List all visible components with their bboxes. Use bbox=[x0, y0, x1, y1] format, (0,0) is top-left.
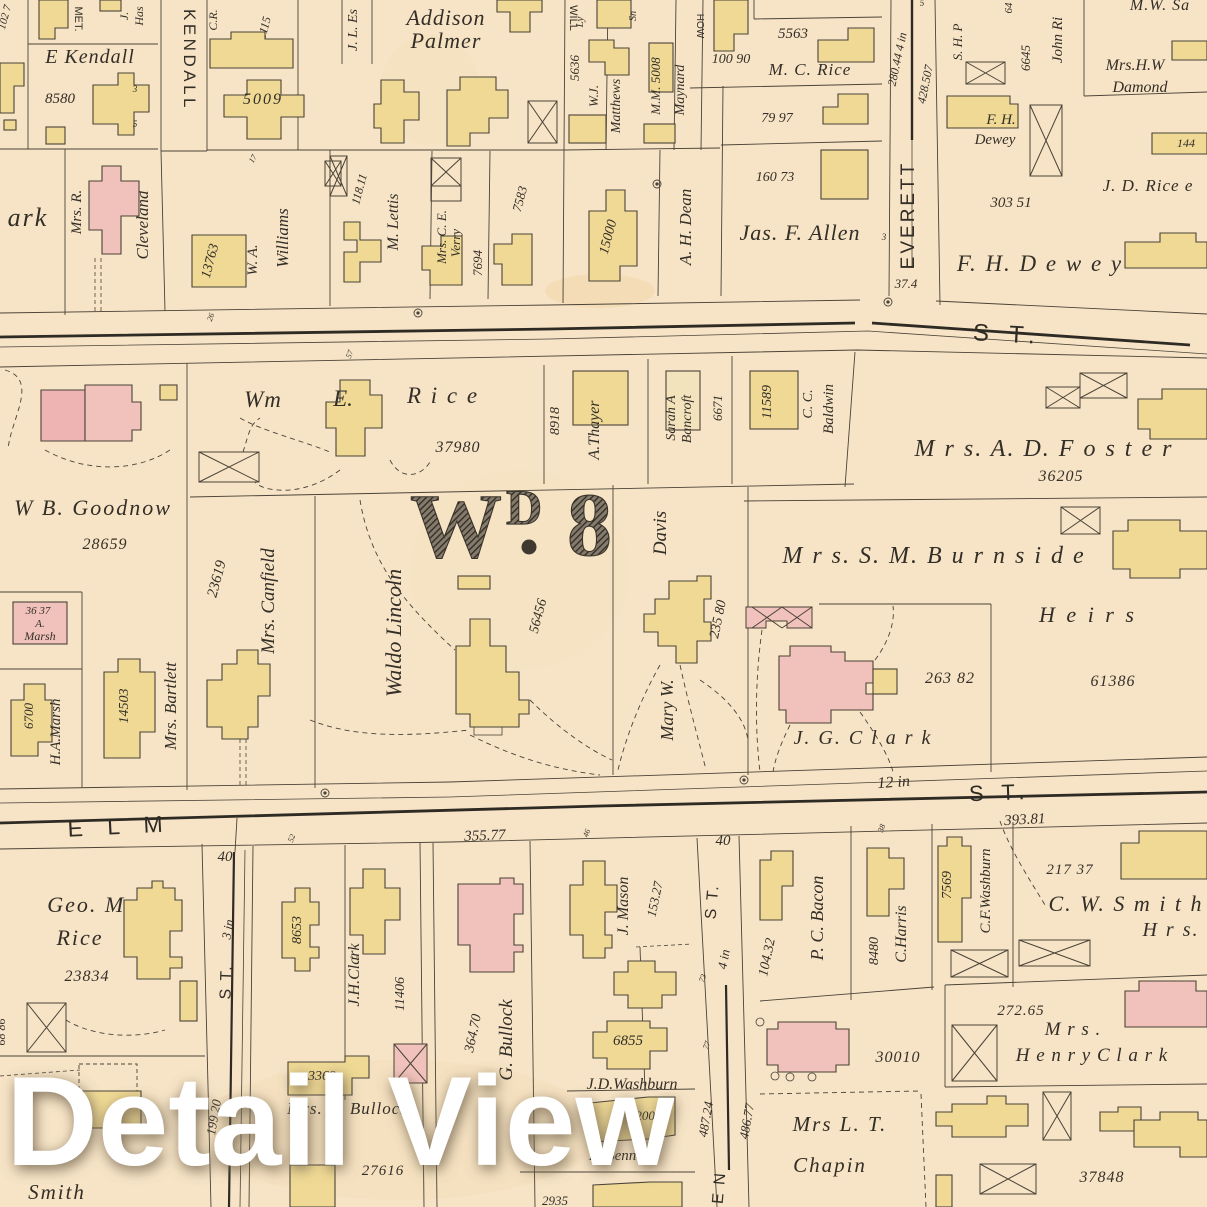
svg-text:Damond: Damond bbox=[1111, 79, 1168, 96]
svg-text:C.F.Washburn: C.F.Washburn bbox=[978, 848, 994, 933]
svg-text:A. H. Dean: A. H. Dean bbox=[676, 189, 695, 266]
svg-text:M.M. 5008: M.M. 5008 bbox=[648, 57, 663, 116]
svg-text:M. C. Rice: M. C. Rice bbox=[768, 60, 852, 79]
svg-text:5: 5 bbox=[133, 119, 138, 129]
svg-text:Geo. M.: Geo. M. bbox=[47, 892, 132, 917]
svg-text:Jas. F. Allen: Jas. F. Allen bbox=[740, 220, 861, 245]
svg-text:M. Lettis: M. Lettis bbox=[385, 194, 402, 252]
svg-text:C.R.: C.R. bbox=[206, 9, 220, 30]
svg-text:Mrs. C. E.: Mrs. C. E. bbox=[434, 210, 449, 265]
svg-text:A.Thayer: A.Thayer bbox=[586, 400, 603, 461]
svg-text:37980: 37980 bbox=[435, 439, 481, 456]
svg-text:Detail View: Detail View bbox=[6, 1050, 675, 1192]
svg-text:Verry: Verry bbox=[448, 229, 463, 257]
svg-text:79 97: 79 97 bbox=[761, 111, 794, 126]
svg-text:263 82: 263 82 bbox=[925, 670, 975, 687]
svg-text:Mrs L. T.: Mrs L. T. bbox=[792, 1112, 888, 1136]
svg-text:5009: 5009 bbox=[243, 91, 283, 108]
svg-text:393.81: 393.81 bbox=[1003, 811, 1046, 829]
svg-text:E Kendall: E Kendall bbox=[44, 46, 135, 68]
svg-text:Chapin: Chapin bbox=[793, 1153, 867, 1177]
svg-text:MET.: MET. bbox=[72, 6, 84, 31]
svg-text:S T.: S T. bbox=[217, 964, 235, 1000]
svg-text:F. H.: F. H. bbox=[985, 112, 1015, 128]
svg-text:John Ri: John Ri bbox=[1050, 17, 1066, 63]
svg-text:8580: 8580 bbox=[45, 91, 76, 107]
svg-text:Bancroft: Bancroft bbox=[680, 394, 695, 444]
svg-text:12 in: 12 in bbox=[877, 773, 911, 792]
svg-text:M.W. Sa: M.W. Sa bbox=[1129, 0, 1190, 14]
svg-text:M r s .: M r s . bbox=[1044, 1019, 1102, 1040]
svg-text:Sn: Sn bbox=[628, 11, 639, 21]
svg-text:Rice: Rice bbox=[55, 925, 103, 950]
svg-text:8918: 8918 bbox=[548, 407, 563, 435]
svg-text:8: 8 bbox=[567, 476, 612, 575]
svg-text:6855: 6855 bbox=[613, 1033, 644, 1049]
svg-text:7569: 7569 bbox=[940, 871, 955, 899]
svg-text:E.: E. bbox=[332, 386, 353, 411]
svg-text:Sarah A: Sarah A bbox=[664, 395, 679, 441]
svg-text:H r s.: H r s. bbox=[1141, 919, 1199, 941]
svg-text:KENDALL: KENDALL bbox=[180, 9, 199, 111]
svg-text:355.77: 355.77 bbox=[463, 827, 507, 845]
svg-text:7694: 7694 bbox=[470, 250, 485, 277]
svg-text:J.H.Clark: J.H.Clark bbox=[346, 943, 363, 1007]
svg-text:8480: 8480 bbox=[867, 937, 882, 965]
svg-text:Mary W.: Mary W. bbox=[657, 679, 677, 741]
svg-text:14503: 14503 bbox=[117, 689, 132, 724]
svg-text:S T.: S T. bbox=[703, 883, 723, 920]
svg-text:C.Harris: C.Harris bbox=[893, 905, 910, 962]
svg-text:J.: J. bbox=[117, 12, 131, 20]
svg-text:23834: 23834 bbox=[65, 968, 110, 985]
svg-text:R i c e: R i c e bbox=[406, 383, 479, 408]
svg-text:F. H. D e w e y: F. H. D e w e y bbox=[956, 251, 1123, 276]
svg-text:36205: 36205 bbox=[1038, 468, 1084, 485]
svg-text:3: 3 bbox=[132, 84, 138, 94]
svg-text:303 51: 303 51 bbox=[989, 195, 1031, 211]
svg-text:6671: 6671 bbox=[710, 395, 725, 421]
svg-text:217 37: 217 37 bbox=[1046, 862, 1094, 878]
svg-text:Davis: Davis bbox=[650, 511, 671, 556]
svg-text:E L M: E L M bbox=[67, 810, 172, 841]
svg-text:5563: 5563 bbox=[778, 26, 808, 42]
svg-text:61386: 61386 bbox=[1091, 673, 1136, 690]
svg-text:S T.: S T. bbox=[969, 779, 1031, 806]
svg-text:J. Mason: J. Mason bbox=[615, 877, 632, 936]
svg-text:Palmer: Palmer bbox=[410, 28, 482, 53]
svg-text:W: W bbox=[410, 475, 502, 577]
svg-text:EVERETT: EVERETT bbox=[898, 161, 919, 270]
svg-text:Ly: Ly bbox=[574, 17, 586, 29]
svg-text:E N: E N bbox=[710, 1171, 730, 1205]
svg-text:P. C. Bacon: P. C. Bacon bbox=[807, 876, 827, 962]
svg-text:144: 144 bbox=[1177, 136, 1195, 150]
svg-text:Has: Has bbox=[132, 6, 146, 27]
svg-text:Mrs.H.W: Mrs.H.W bbox=[1105, 57, 1166, 74]
svg-text:Mrs. R.: Mrs. R. bbox=[69, 190, 85, 236]
svg-text:8653: 8653 bbox=[290, 916, 305, 944]
svg-text:ark: ark bbox=[8, 203, 49, 232]
svg-text:HOW: HOW bbox=[694, 14, 705, 39]
svg-text:Williams: Williams bbox=[273, 208, 292, 268]
svg-text:Waldo Lincoln: Waldo Lincoln bbox=[381, 569, 406, 697]
svg-text:30010: 30010 bbox=[875, 1049, 921, 1066]
svg-text:11589: 11589 bbox=[760, 385, 775, 419]
svg-text:H e n r y C l a r k: H e n r y C l a r k bbox=[1015, 1045, 1169, 1066]
svg-text:64: 64 bbox=[1003, 2, 1015, 14]
svg-text:6645: 6645 bbox=[1018, 45, 1033, 72]
svg-text:Matthews: Matthews bbox=[609, 78, 624, 134]
svg-text:W. A.: W. A. bbox=[245, 244, 261, 275]
svg-text:272.65: 272.65 bbox=[997, 1003, 1044, 1019]
svg-text:D: D bbox=[506, 479, 542, 535]
svg-text:Maynard: Maynard bbox=[673, 64, 688, 117]
svg-text:M r s. A. D. F o s t e r: M r s. A. D. F o s t e r bbox=[914, 436, 1174, 462]
svg-text:5: 5 bbox=[920, 0, 925, 8]
svg-text:H.A.Marsh: H.A.Marsh bbox=[48, 699, 64, 767]
svg-text:68 86: 68 86 bbox=[0, 1019, 8, 1046]
svg-text:100 90: 100 90 bbox=[712, 52, 751, 67]
svg-text:40: 40 bbox=[716, 833, 732, 849]
svg-text:C. W. S m i t h: C. W. S m i t h bbox=[1048, 891, 1203, 916]
svg-text:37.4: 37.4 bbox=[894, 276, 918, 291]
svg-text:6700: 6700 bbox=[21, 703, 36, 730]
svg-text:28659: 28659 bbox=[83, 536, 128, 553]
svg-text:2935: 2935 bbox=[542, 1193, 569, 1207]
svg-text:M r s. S. M. B u r n s i d e: M r s. S. M. B u r n s i d e bbox=[781, 543, 1085, 569]
svg-text:3: 3 bbox=[881, 232, 887, 242]
svg-text:J. L. Es: J. L. Es bbox=[346, 8, 361, 51]
svg-text:Marsh: Marsh bbox=[23, 629, 55, 643]
svg-text:Addison: Addison bbox=[404, 5, 485, 30]
svg-text:J. D. Rice e: J. D. Rice e bbox=[1103, 176, 1194, 195]
svg-text:S T.: S T. bbox=[972, 319, 1042, 350]
svg-text:J. G. C l a r k: J. G. C l a r k bbox=[794, 727, 933, 749]
svg-text:Mrs. Canfield: Mrs. Canfield bbox=[258, 548, 279, 655]
svg-text:Wm: Wm bbox=[244, 387, 282, 412]
svg-text:160 73: 160 73 bbox=[756, 170, 795, 185]
svg-text:S. H. P: S. H. P bbox=[950, 24, 965, 61]
svg-text:36 37: 36 37 bbox=[25, 605, 51, 617]
svg-text:11406: 11406 bbox=[393, 977, 408, 1011]
svg-text:5636: 5636 bbox=[567, 55, 582, 82]
svg-text:40: 40 bbox=[218, 849, 234, 865]
svg-text:C. C.: C. C. bbox=[801, 389, 816, 418]
svg-text:Dewey: Dewey bbox=[974, 132, 1016, 148]
svg-text:Mrs. Bartlett: Mrs. Bartlett bbox=[161, 661, 180, 751]
svg-text:W.J.: W.J. bbox=[586, 85, 601, 107]
svg-text:Baldwin: Baldwin bbox=[821, 384, 837, 434]
svg-text:W B. Goodnow: W B. Goodnow bbox=[14, 495, 172, 520]
svg-text:37848: 37848 bbox=[1079, 1169, 1125, 1186]
svg-text:H e i r s: H e i r s bbox=[1038, 602, 1137, 627]
